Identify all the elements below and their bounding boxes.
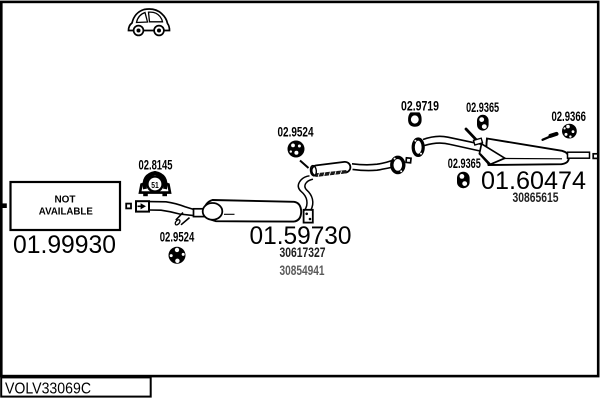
svg-text:30854941: 30854941	[280, 262, 325, 278]
svg-text:01.99930: 01.99930	[13, 231, 116, 259]
svg-text:51: 51	[151, 180, 159, 190]
svg-text:02.9719: 02.9719	[401, 98, 439, 114]
svg-text:02.9524: 02.9524	[160, 229, 195, 245]
svg-text:NOT: NOT	[55, 193, 77, 205]
svg-text:02.9524: 02.9524	[278, 123, 314, 139]
svg-text:02.8145: 02.8145	[139, 157, 173, 173]
svg-text:02.9365: 02.9365	[466, 99, 499, 115]
svg-text:02.9365: 02.9365	[448, 155, 481, 171]
svg-text:30865615: 30865615	[513, 189, 559, 205]
svg-text:VOLV33069C: VOLV33069C	[5, 381, 91, 398]
svg-text:02.9366: 02.9366	[551, 108, 586, 124]
svg-text:AVAILABLE: AVAILABLE	[39, 205, 93, 217]
svg-text:30617327: 30617327	[280, 244, 326, 260]
